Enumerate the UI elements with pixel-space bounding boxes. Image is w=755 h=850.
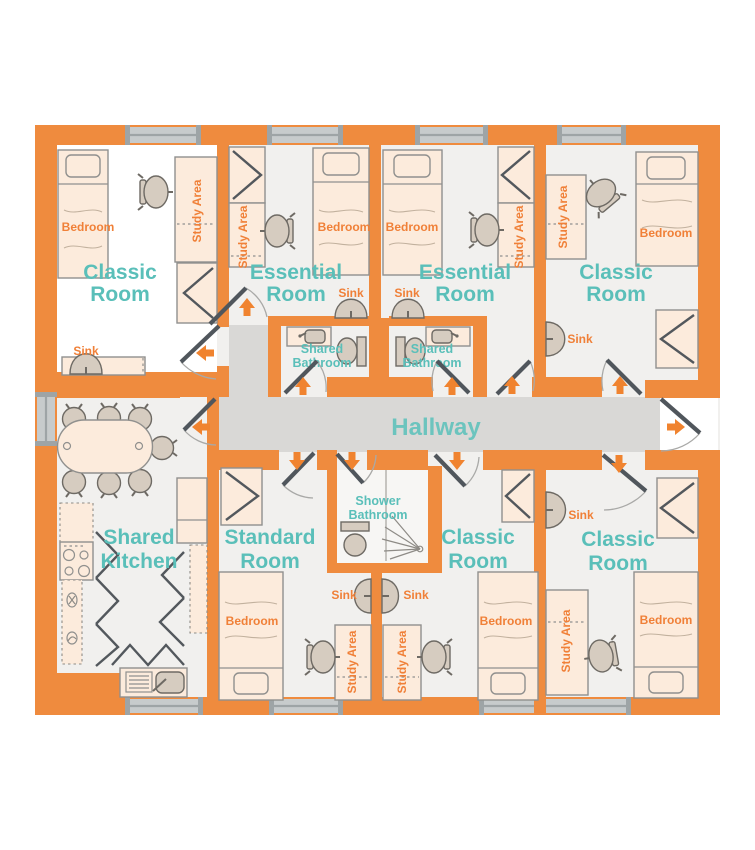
bed-icon xyxy=(478,572,538,700)
window xyxy=(125,125,201,145)
dining-table-icon xyxy=(58,420,153,473)
sink-label: Sink xyxy=(331,588,357,602)
kitchen-sink-icon xyxy=(120,668,187,697)
wardrobe-icon xyxy=(657,478,698,538)
floor-plan-page: Classic Room Bedroom Study Area Sink Ess… xyxy=(0,0,755,850)
sink-label: Sink xyxy=(394,286,420,300)
room-title-line1: Classic xyxy=(581,528,655,551)
wardrobe-icon xyxy=(502,470,534,522)
bedroom-label: Bedroom xyxy=(640,613,693,627)
room-title-line1: Essential xyxy=(250,261,342,284)
wardrobe-icon xyxy=(177,263,217,323)
window xyxy=(35,392,57,446)
hallway-label: Hallway xyxy=(391,414,481,441)
room-title-line2: Room xyxy=(586,283,646,306)
room-title-line1: Classic xyxy=(83,261,157,284)
floor-plan: Classic Room Bedroom Study Area Sink Ess… xyxy=(0,0,755,850)
wardrobe-icon xyxy=(221,468,262,525)
bedroom-label: Bedroom xyxy=(62,220,115,234)
room-title-line1: Shared xyxy=(103,526,174,549)
room-title-line2: Room xyxy=(90,283,150,306)
bed-icon xyxy=(636,152,698,266)
room-title-line1: Classic xyxy=(579,261,653,284)
window xyxy=(125,697,203,715)
bedroom-label: Bedroom xyxy=(226,614,279,628)
room-title-line2: Kitchen xyxy=(100,550,177,573)
room-title-line2: Room xyxy=(240,550,300,573)
bedroom-label: Bedroom xyxy=(318,220,371,234)
study-area-label: Study Area xyxy=(559,609,573,672)
room-title-line2: Room xyxy=(588,552,648,575)
hob-icon xyxy=(60,542,93,580)
room-title-line2: Room xyxy=(435,283,495,306)
bed-icon xyxy=(383,150,442,275)
study-area-label: Study Area xyxy=(395,630,409,693)
sink-label: Sink xyxy=(568,508,594,522)
wardrobe-icon xyxy=(656,310,698,368)
window xyxy=(557,125,626,145)
bedroom-label: Bedroom xyxy=(640,226,693,240)
room-title-line2: Bathroom xyxy=(402,356,461,370)
study-area-label: Study Area xyxy=(556,185,570,248)
kitchen-counter xyxy=(60,503,93,542)
bedroom-label: Bedroom xyxy=(480,614,533,628)
room-title-line1: Shower xyxy=(355,494,400,508)
bed-icon xyxy=(219,572,283,700)
room-title-line1: Standard xyxy=(224,526,315,549)
window xyxy=(415,125,488,145)
vestibule-area xyxy=(229,325,268,397)
window xyxy=(546,697,631,715)
bed-icon xyxy=(58,150,108,278)
wardrobe-icon xyxy=(229,147,265,203)
room-title-line2: Room xyxy=(448,550,508,573)
room-title-line1: Essential xyxy=(419,261,511,284)
sink-label: Sink xyxy=(73,344,99,358)
sink-label: Sink xyxy=(338,286,364,300)
sink-label: Sink xyxy=(403,588,429,602)
study-area-label: Study Area xyxy=(236,205,250,268)
room-title-line2: Room xyxy=(266,283,326,306)
study-area-label: Study Area xyxy=(512,205,526,268)
room-title-line1: Shared xyxy=(411,342,453,356)
room-title-line2: Bathroom xyxy=(348,508,407,522)
sink-label: Sink xyxy=(567,332,593,346)
study-area-label: Study Area xyxy=(345,630,359,693)
bed-icon xyxy=(634,572,698,698)
window xyxy=(267,125,343,145)
wardrobe-icon xyxy=(498,147,534,203)
study-area-label: Study Area xyxy=(190,179,204,242)
toilet-icon xyxy=(341,522,369,556)
room-title-line1: Shared xyxy=(301,342,343,356)
room-title-line1: Classic xyxy=(441,526,515,549)
bed-icon xyxy=(313,148,369,275)
bedroom-label: Bedroom xyxy=(386,220,439,234)
